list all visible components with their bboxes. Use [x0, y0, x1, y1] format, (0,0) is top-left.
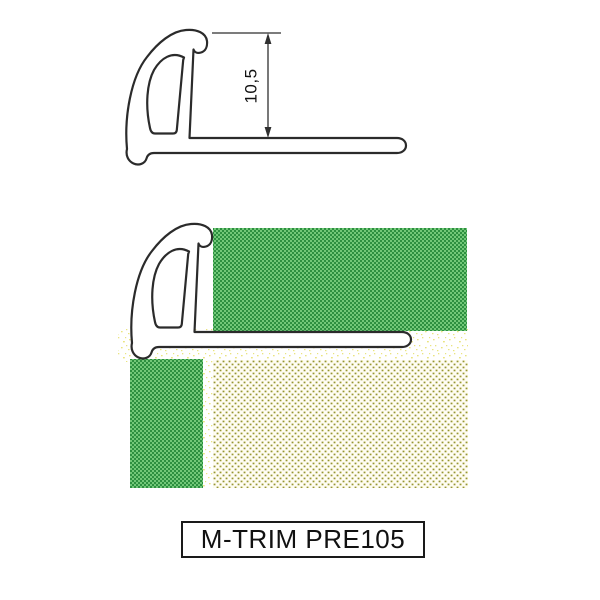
dimension-arrow-up — [265, 33, 272, 44]
trim-profile-drawing: 10,5 — [0, 0, 600, 600]
profile-outline-group — [126, 30, 406, 165]
tile-vertical — [130, 359, 203, 488]
installation-view — [118, 224, 468, 488]
mortar-bed — [213, 360, 468, 488]
technical-drawing-canvas: 10,5 M-TRIM PRE105 — [0, 0, 600, 600]
product-label-box: M-TRIM PRE105 — [181, 521, 425, 558]
dimension-label: 10,5 — [241, 68, 260, 103]
cross-section-view: 10,5 — [126, 30, 406, 165]
product-label-text: M-TRIM PRE105 — [201, 524, 405, 555]
tile-horizontal — [213, 228, 467, 331]
dimension-arrow-down — [265, 127, 272, 138]
adhesive-layer-vertical — [203, 360, 213, 488]
profile-cross-section — [126, 30, 406, 165]
